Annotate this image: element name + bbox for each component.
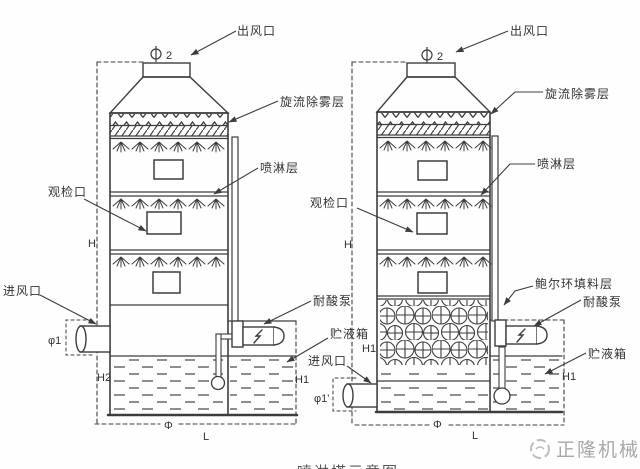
right-demister-layer xyxy=(377,113,490,138)
right-dim-h1-left: H1 xyxy=(362,343,376,355)
left-demister-layer xyxy=(110,114,228,139)
left-circulation-pipe xyxy=(232,137,238,322)
left-inlet-pipe xyxy=(76,326,110,352)
left-dim-h2: H2 xyxy=(97,372,111,384)
left-outlet-label: 出风口 xyxy=(237,24,276,38)
right-pump-leader xyxy=(534,300,581,326)
right-inspection-label: 观检口 xyxy=(310,195,349,210)
right-pump-label: 耐酸泵 xyxy=(583,294,622,309)
left-demister-leader xyxy=(229,101,278,122)
right-pall-ring-packing xyxy=(380,300,488,365)
left-phi2-symbol xyxy=(151,46,161,62)
left-outlet-stub xyxy=(110,63,228,113)
right-outlet-stub xyxy=(377,63,490,112)
left-spray-layers xyxy=(110,142,228,305)
left-dim-h: H xyxy=(88,238,96,250)
right-foot-valve xyxy=(494,388,510,404)
right-demister-label: 旋流除雾层 xyxy=(545,86,610,101)
right-inlet-leader xyxy=(347,366,371,383)
right-demister-leader xyxy=(491,92,543,114)
diagram-canvas: 出风口 旋流除雾层 喷淋层 观检口 进风口 耐酸泵 贮液箱 2 H H2 H1 … xyxy=(0,0,640,469)
right-spray-leader xyxy=(481,164,535,195)
right-dim-h: H xyxy=(344,239,352,251)
right-outlet-label: 出风口 xyxy=(510,24,549,38)
caption-text: 喷淋塔示意图 xyxy=(297,463,399,469)
right-dim-h1-right: H1 xyxy=(562,371,576,383)
left-dim-l: L xyxy=(203,431,209,443)
watermark: 正隆机械 xyxy=(531,439,640,461)
left-inspection-label: 观检口 xyxy=(48,184,87,199)
right-phi2-symbol xyxy=(422,47,432,63)
right-tank-label: 贮液箱 xyxy=(588,346,627,361)
right-acid-pump xyxy=(495,320,547,346)
right-tower-labels: 出风口 旋流除雾层 喷淋层 观检口 鲍尔环填料层 耐酸泵 贮液箱 进风口 2 H… xyxy=(308,24,627,442)
right-outlet-leader xyxy=(456,31,508,52)
right-spray-label: 喷淋层 xyxy=(537,157,576,171)
right-spray-layers xyxy=(377,141,491,299)
left-spray-label: 喷淋层 xyxy=(260,161,299,175)
right-circulation-pipe xyxy=(492,136,498,321)
left-acid-pump xyxy=(232,321,284,347)
right-dim-phi1: φ1' xyxy=(314,393,329,405)
scrubber-tower-diagram: 出风口 旋流除雾层 喷淋层 观检口 进风口 耐酸泵 贮液箱 2 H H2 H1 … xyxy=(0,0,640,469)
left-demister-label: 旋流除雾层 xyxy=(280,94,345,109)
right-inspection-leader xyxy=(357,208,413,232)
right-tower xyxy=(333,62,564,425)
right-inlet-pipe xyxy=(343,384,377,407)
left-inlet-label: 进风口 xyxy=(3,284,42,298)
right-inlet-label: 进风口 xyxy=(308,354,347,368)
left-dim-phi1: φ1 xyxy=(48,335,61,347)
right-dim-l: L xyxy=(472,430,478,442)
left-dim-phi: Φ xyxy=(164,420,173,432)
left-phi2-value: 2 xyxy=(166,50,172,62)
watermark-logo-icon xyxy=(531,440,549,458)
right-inspection-windows xyxy=(417,161,447,293)
left-tower xyxy=(66,62,297,424)
right-dim-phi: Φ xyxy=(433,419,442,431)
right-phi2-value: 2 xyxy=(437,51,443,63)
left-tank-label: 贮液箱 xyxy=(330,326,369,341)
left-foot-valve xyxy=(212,377,225,390)
watermark-text: 正隆机械 xyxy=(556,439,640,461)
left-pump-label: 耐酸泵 xyxy=(313,293,352,308)
left-outlet-leader xyxy=(191,31,236,55)
right-packing-leader xyxy=(504,286,533,305)
left-dim-h1: H1 xyxy=(295,374,309,386)
right-packing-label: 鲍尔环填料层 xyxy=(535,276,613,291)
left-inspection-windows xyxy=(147,160,183,293)
